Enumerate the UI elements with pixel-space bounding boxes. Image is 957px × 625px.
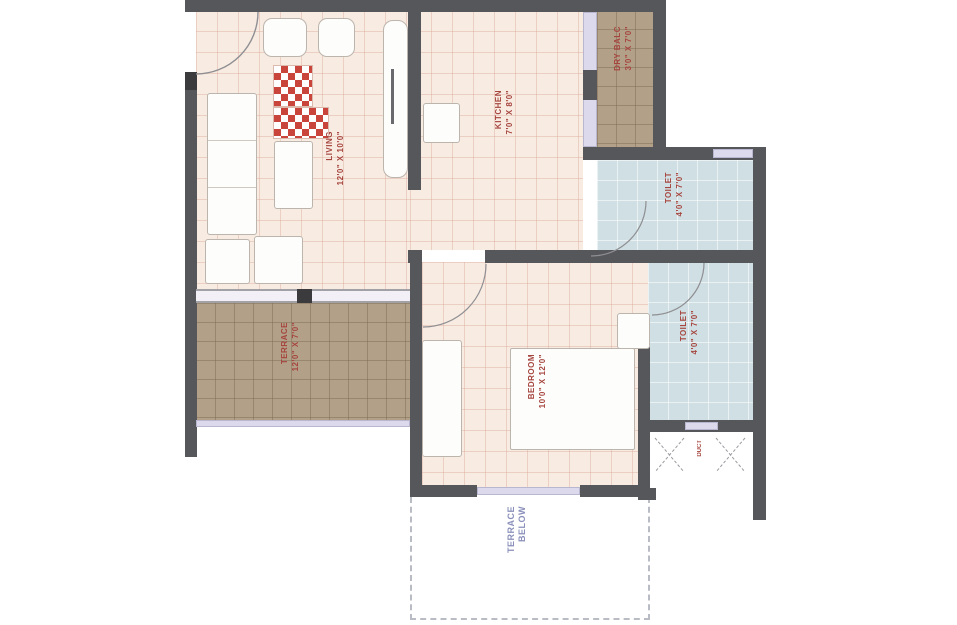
- toilet1-name: TOILET: [664, 172, 673, 203]
- bedroom-window: [477, 487, 580, 495]
- dry-balcony-label: DRY BALC 3'0" X 7'0": [613, 26, 633, 71]
- wall-left-cap: [185, 72, 197, 90]
- wardrobe: [422, 340, 462, 457]
- toilet1-dims: 4'0" X 7'0": [675, 172, 684, 216]
- sofa-seat: [208, 141, 256, 188]
- toilet2-name: TOILET: [679, 310, 688, 341]
- sofa-seat: [208, 188, 256, 234]
- floor-plan-canvas: LIVING 12'0" X 10'0" KITCHEN 7'0" X 8'0"…: [0, 0, 957, 625]
- terrace-bottom-edge: [196, 420, 410, 427]
- toilet1-window: [713, 149, 753, 158]
- refrigerator: [383, 20, 408, 178]
- wall-kitchen-divider: [408, 12, 421, 190]
- terrace-floor: [196, 303, 410, 420]
- dining-rug-lower: [273, 107, 329, 139]
- dry-balcony-name: DRY BALC: [613, 26, 622, 71]
- wall-toilet1-bottom: [587, 250, 753, 263]
- toilet2-dims: 4'0" X 7'0": [690, 310, 699, 354]
- sofa-main: [207, 93, 257, 235]
- sofa-seat: [208, 94, 256, 141]
- kitchen-window-mullion: [583, 70, 597, 100]
- duct-door-vent: [685, 422, 718, 430]
- bedroom-label: BEDROOM 10'0" X 12'0": [527, 354, 547, 408]
- wall-bedroom-top: [485, 250, 587, 263]
- wall-top: [185, 0, 666, 12]
- armchair-2: [318, 18, 355, 57]
- dining-rug-upper: [273, 65, 313, 107]
- wall-left: [185, 72, 197, 457]
- living-dims: 12'0" X 10'0": [336, 131, 345, 185]
- sliding-window-stop: [297, 289, 312, 303]
- wall-bedroom-bottom-right: [580, 485, 650, 497]
- kitchen-name: KITCHEN: [494, 90, 503, 129]
- living-label: LIVING 12'0" X 10'0": [325, 131, 345, 185]
- living-name: LIVING: [325, 131, 334, 161]
- kitchen-label: KITCHEN 7'0" X 8'0": [494, 90, 514, 134]
- bedside-table: [617, 313, 650, 349]
- wall-bedroom-left: [410, 253, 422, 497]
- terrace-below-outline: [410, 497, 650, 620]
- terrace-below-dims: BELOW: [518, 506, 527, 542]
- wall-outer-right: [753, 147, 766, 520]
- toilet1-label: TOILET 4'0" X 7'0": [664, 172, 684, 216]
- terrace-below-label: TERRACE BELOW: [507, 506, 527, 553]
- bedroom-dims: 10'0" X 12'0": [538, 354, 547, 408]
- sofa-corner-seat: [205, 239, 250, 284]
- terrace-label: TERRACE 12'0" X 7'0": [280, 322, 300, 371]
- kitchen-dims: 7'0" X 8'0": [505, 90, 514, 134]
- living-table: [274, 141, 313, 209]
- armchair-1: [263, 18, 307, 57]
- toilet2-label: TOILET 4'0" X 7'0": [679, 310, 699, 354]
- wall-toilet2-left: [638, 347, 650, 488]
- wall-bedroom-bottom-left: [410, 485, 477, 497]
- sofa-side-seat: [254, 236, 303, 284]
- toilet2-floor: [648, 262, 753, 420]
- terrace-below-name: TERRACE: [507, 506, 516, 553]
- refrigerator-handle: [391, 69, 394, 124]
- terrace-dims: 12'0" X 7'0": [291, 322, 300, 371]
- bedroom-name: BEDROOM: [527, 354, 536, 399]
- kitchen-sink: [423, 103, 460, 143]
- duct-name: DUCT: [696, 440, 705, 457]
- wall-drybalc-right: [653, 0, 666, 147]
- duct-label: DUCT: [696, 440, 705, 457]
- terrace-name: TERRACE: [280, 322, 289, 364]
- dry-balcony-dims: 3'0" X 7'0": [624, 26, 633, 70]
